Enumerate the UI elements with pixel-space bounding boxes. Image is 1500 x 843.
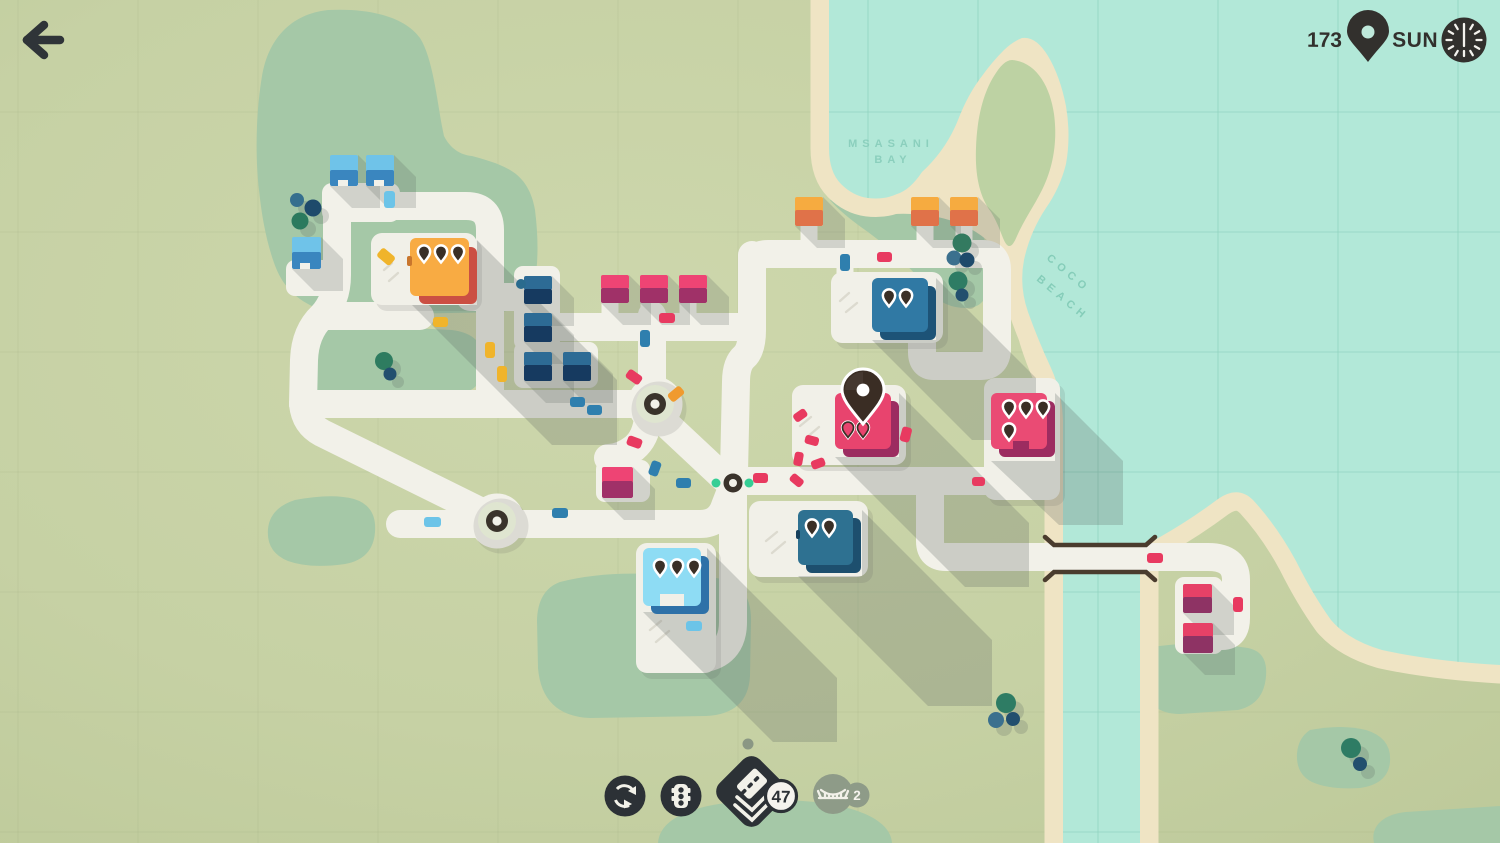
svg-text:2: 2: [853, 788, 861, 803]
svg-text:47: 47: [772, 787, 791, 806]
svg-text:BAY: BAY: [874, 154, 911, 166]
svg-text:MSASANI: MSASANI: [848, 138, 934, 150]
svg-text:SUN: SUN: [1392, 29, 1438, 52]
svg-text:173: 173: [1307, 29, 1342, 52]
